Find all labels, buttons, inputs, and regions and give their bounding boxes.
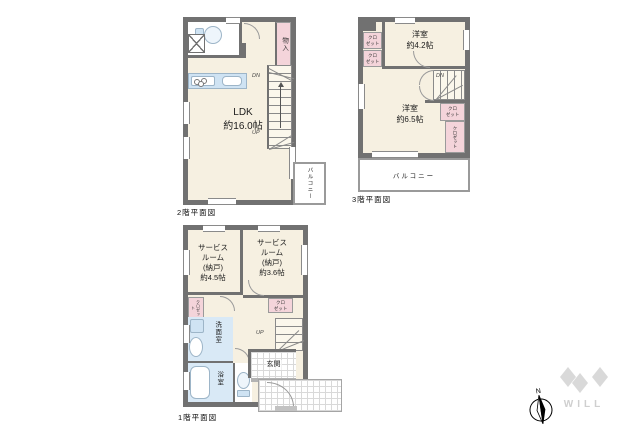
- floor1-caption: 1階平面図: [178, 412, 217, 423]
- wall-segment: [188, 292, 243, 295]
- window: [183, 250, 190, 275]
- stove-icon: [191, 76, 215, 86]
- floor2-plan: 物入 LDK 約16.0帖 DN UP: [183, 17, 296, 205]
- floor3-balcony: バルコニー: [358, 158, 470, 192]
- wall-segment: [382, 22, 385, 69]
- floor3-closet-left-top: クロ ゼット: [363, 32, 382, 49]
- window: [183, 325, 190, 343]
- wall-segment: [358, 17, 376, 31]
- floor2-storage-closet: 物入: [275, 22, 291, 68]
- floor1-bath-label: 浴室: [214, 371, 223, 386]
- compass-icon: N: [522, 384, 560, 426]
- door-arc: [220, 296, 235, 311]
- window: [203, 225, 225, 232]
- window: [463, 30, 470, 50]
- pipe-shaft-icon: [188, 34, 205, 53]
- door-arc: [419, 70, 434, 85]
- bathtub-icon: [190, 366, 210, 399]
- floor3-room-b-label: 洋室 約6.5帖: [375, 104, 445, 126]
- floor1-service-b-label: サービス ルーム (納戸) 約3.6帖: [243, 238, 301, 279]
- kitchen-counter: [188, 73, 247, 89]
- floor2-caption: 2階平面図: [177, 207, 216, 218]
- floor1-closet-left: クロゼット: [188, 297, 204, 318]
- entrance-porch: [258, 379, 342, 412]
- brand-logo-icon: [556, 366, 612, 394]
- washbasin-icon: [189, 337, 203, 357]
- floor1-up-label: UP: [256, 330, 264, 336]
- floor1-washroom-label: 洗面室: [212, 321, 221, 344]
- window: [183, 372, 190, 390]
- floor1-washroom: 洗面室: [188, 317, 233, 361]
- door-arc: [248, 280, 264, 296]
- door-arc: [244, 23, 260, 39]
- front-door-arc: [267, 382, 294, 407]
- toilet-bowl-icon: [204, 26, 222, 44]
- floor3-dn-label: DN: [436, 73, 444, 79]
- floor1-closet-right: クロ ゼット: [268, 298, 293, 313]
- window: [258, 225, 280, 232]
- toilet-tank-icon: [237, 390, 250, 397]
- brand-name: WILL: [556, 399, 612, 410]
- floor1-bathroom: 浴室: [188, 363, 233, 402]
- floor3-room-a-label: 洋室 約4.2帖: [385, 30, 455, 52]
- compass: N: [522, 384, 560, 426]
- wall-segment: [242, 43, 246, 58]
- floor2-stairs: [267, 65, 292, 149]
- floor2-dn-label: DN: [252, 73, 260, 79]
- stairs-arrowhead-icon: [278, 82, 284, 87]
- floor1-stairs: [275, 318, 303, 351]
- floor1-entrance: 玄関: [251, 352, 296, 378]
- window: [301, 245, 308, 275]
- brand-logo: WILL: [556, 366, 612, 408]
- floor-plan-canvas: 物入 LDK 約16.0帖 DN UP: [0, 0, 640, 427]
- window: [226, 17, 240, 24]
- washer-pan-icon: [190, 319, 204, 333]
- floor2-balcony: バルコニー: [293, 162, 326, 205]
- window: [183, 102, 190, 124]
- floor3-closet-right-tall: クロゼット: [445, 121, 465, 153]
- stairs-direction-line: [280, 86, 281, 128]
- floor2-up-label: UP: [252, 130, 260, 136]
- porch-step: [275, 406, 297, 411]
- sink-icon: [222, 76, 242, 86]
- door-arc: [419, 86, 434, 101]
- window: [395, 17, 415, 24]
- floor1-service-a-label: サービス ルーム (納戸) 約4.5帖: [188, 243, 238, 284]
- floor3-caption: 3階平面図: [352, 194, 391, 205]
- balcony-door: [372, 151, 418, 158]
- floor3-plan: 洋室 約4.2帖 クロ ゼット クロ ゼット 洋室 約6.5帖 DN クロ ゼッ…: [358, 17, 470, 158]
- compass-north-label: N: [535, 388, 541, 396]
- floor3-closet-left-bottom: クロ ゼット: [363, 50, 382, 67]
- window: [358, 84, 365, 109]
- floor3-closet-right-small: クロ ゼット: [440, 103, 465, 121]
- floor1-entrance-label: 玄関: [266, 360, 282, 369]
- window: [183, 137, 190, 159]
- window: [208, 198, 236, 205]
